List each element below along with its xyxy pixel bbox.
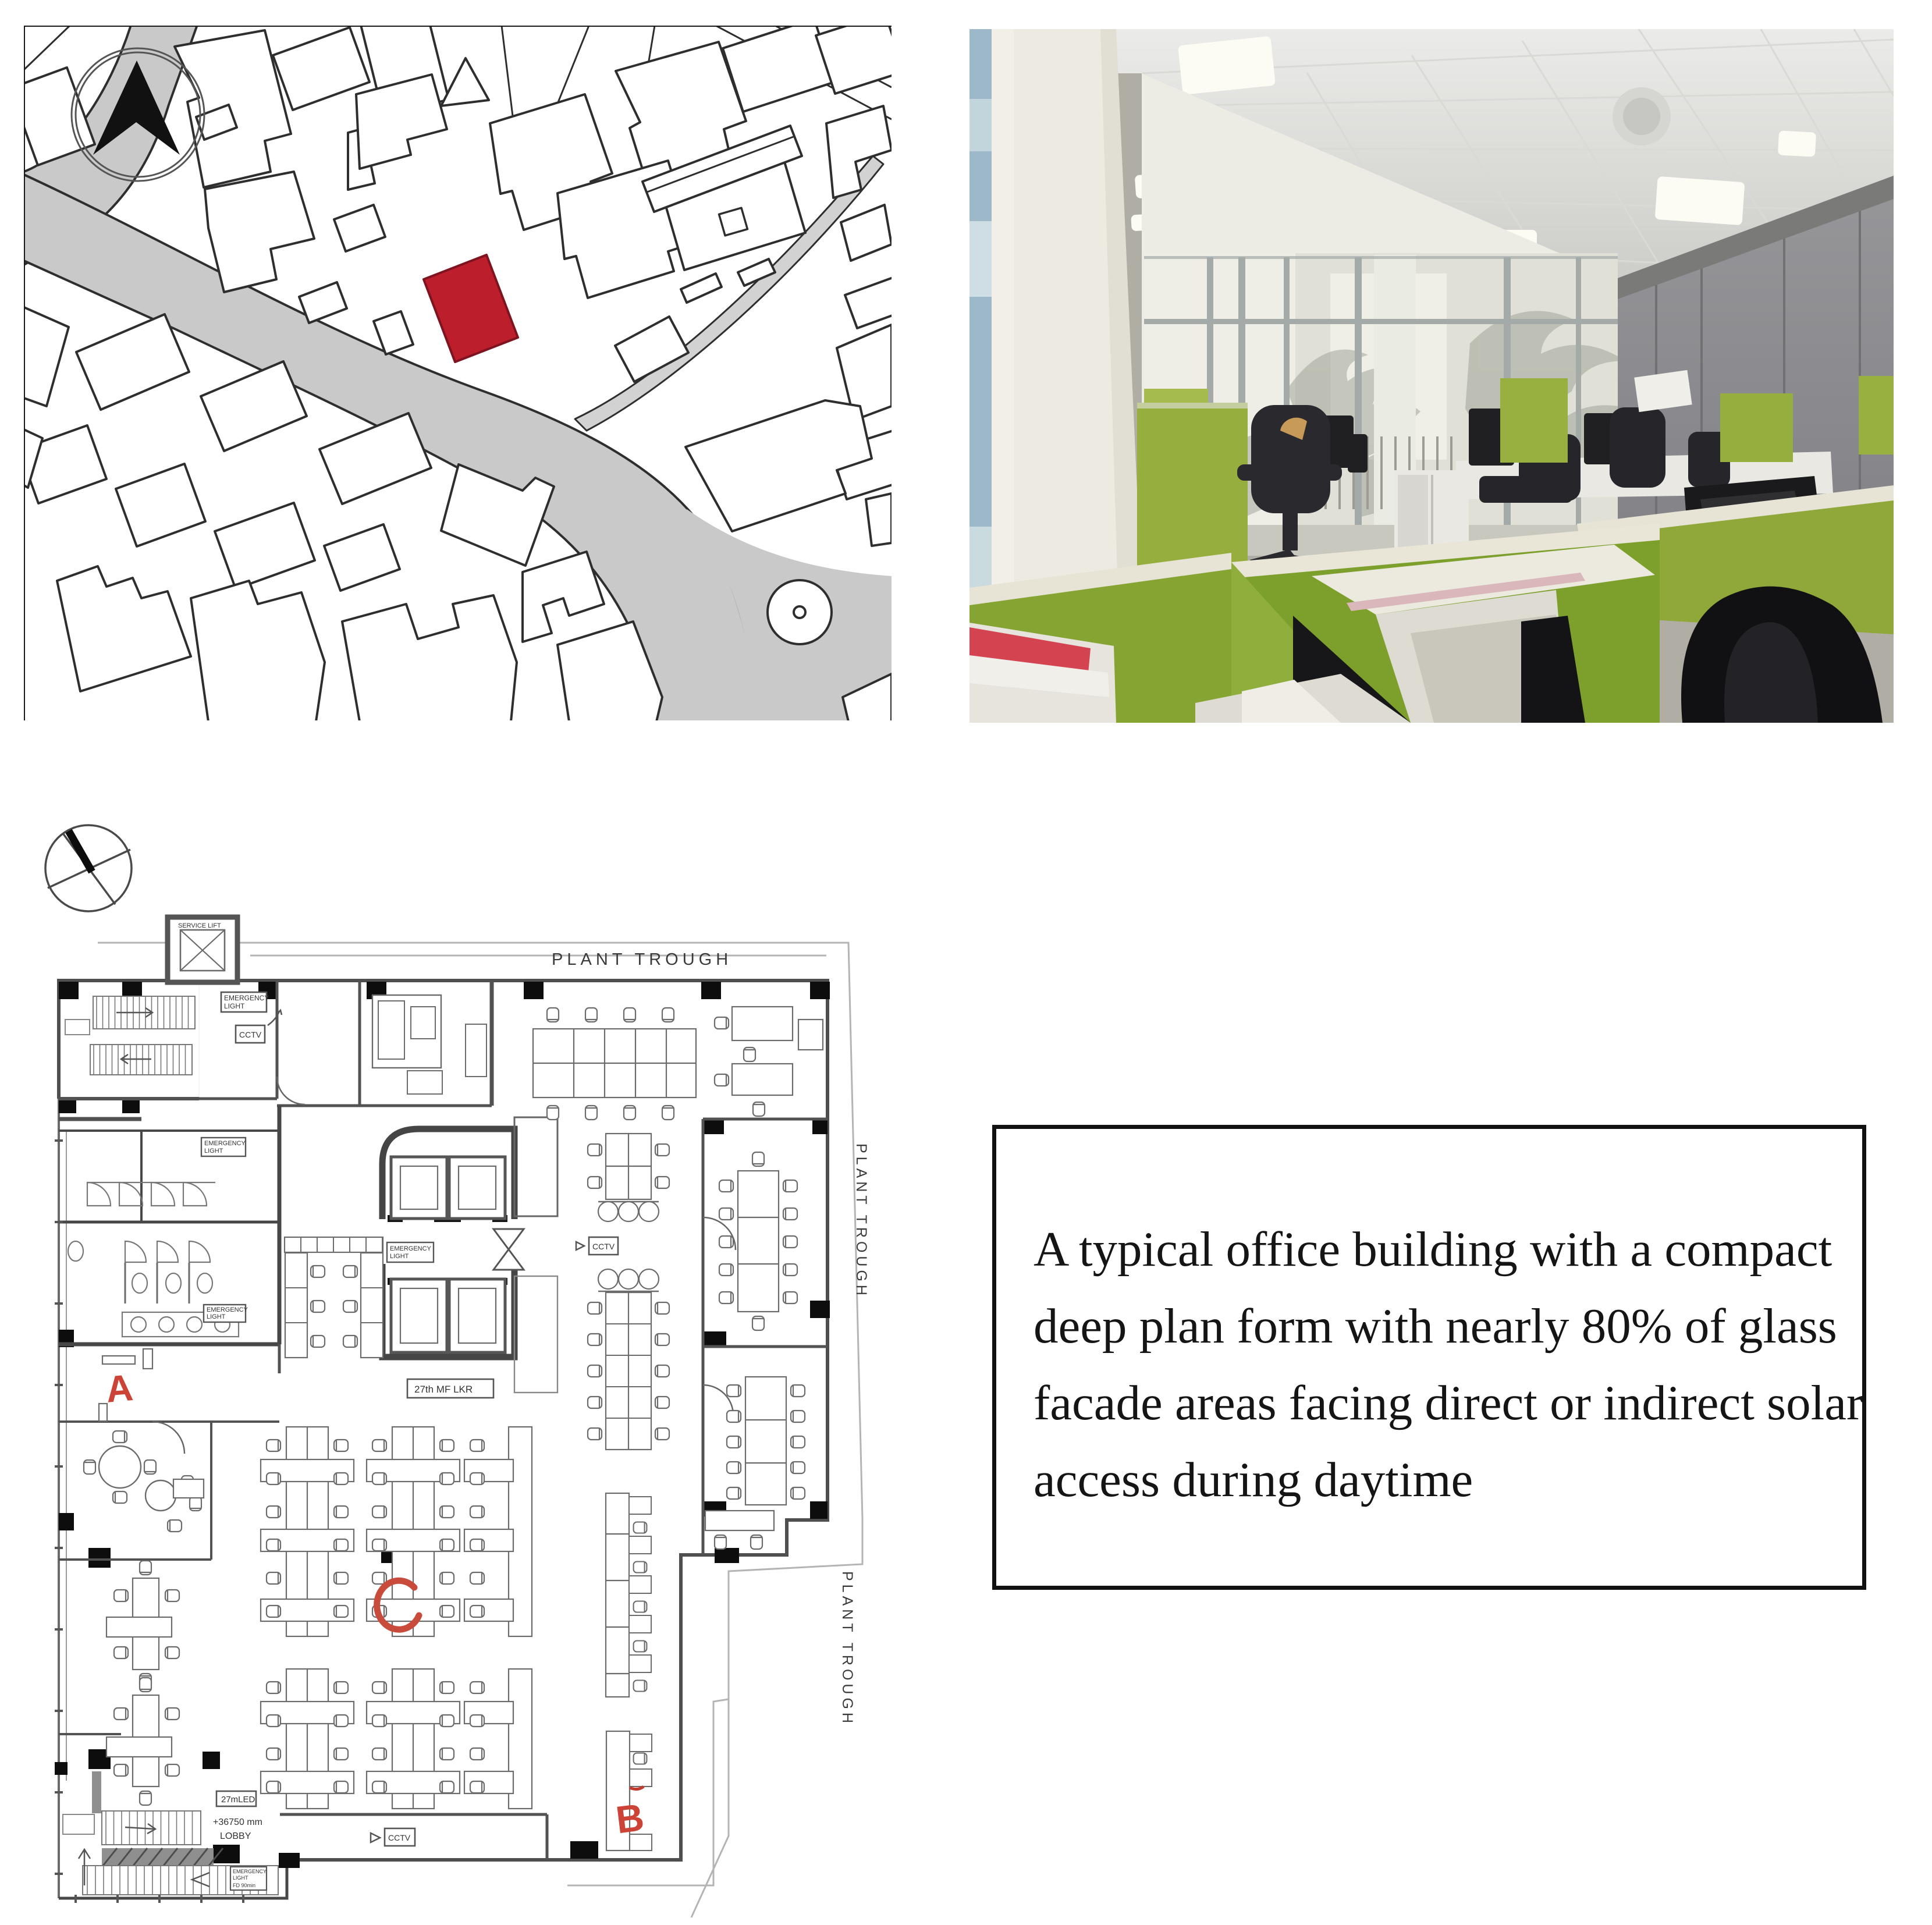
svg-text:A: A: [104, 1366, 134, 1411]
svg-text:27mLED: 27mLED: [221, 1795, 255, 1805]
svg-text:B: B: [613, 1795, 646, 1841]
svg-text:LIGHT: LIGHT: [204, 1148, 223, 1155]
svg-text:LIGHT: LIGHT: [390, 1253, 409, 1260]
svg-text:LIGHT: LIGHT: [224, 1002, 245, 1010]
svg-text:LIGHT: LIGHT: [233, 1875, 248, 1881]
svg-text:EMERGENCY: EMERGENCY: [233, 1869, 267, 1874]
svg-text:CCTV: CCTV: [592, 1242, 615, 1251]
svg-text:LOBBY: LOBBY: [220, 1831, 251, 1841]
svg-text:PLANT TROUGH: PLANT TROUGH: [552, 950, 732, 969]
svg-text:FD 90min: FD 90min: [233, 1883, 255, 1888]
svg-text:EMERGENCY: EMERGENCY: [390, 1245, 432, 1252]
svg-text:SERVICE LIFT: SERVICE LIFT: [178, 922, 221, 929]
svg-text:EMERGENCY: EMERGENCY: [224, 994, 269, 1002]
svg-text:CCTV: CCTV: [388, 1833, 411, 1842]
svg-text:CCTV: CCTV: [239, 1030, 262, 1039]
svg-text:27th MF LKR: 27th MF LKR: [414, 1384, 473, 1395]
svg-text:EMERGENCY: EMERGENCY: [204, 1140, 246, 1147]
svg-text:PLANT TROUGH: PLANT TROUGH: [839, 1571, 855, 1727]
svg-text:PLANT TROUGH: PLANT TROUGH: [853, 1143, 869, 1299]
svg-text:EMERGENCY: EMERGENCY: [207, 1306, 248, 1313]
svg-text:LIGHT: LIGHT: [207, 1313, 226, 1320]
svg-text:+36750 mm: +36750 mm: [213, 1817, 262, 1827]
